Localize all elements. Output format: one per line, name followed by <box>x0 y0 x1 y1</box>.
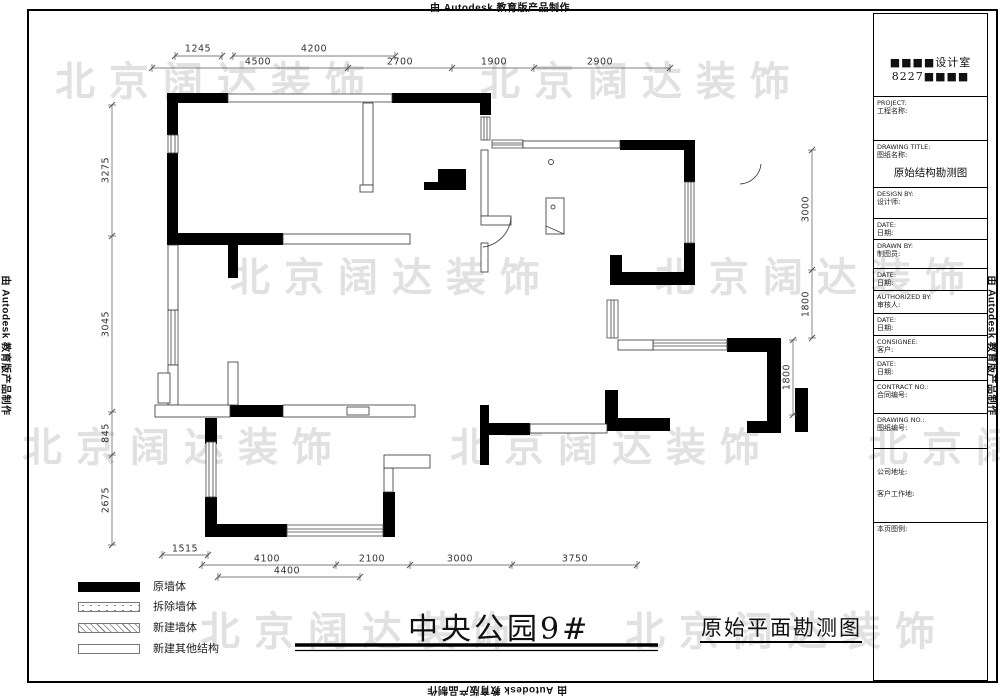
page-legend-label: 本页图例: <box>877 525 984 534</box>
legend-item-new-wall: 新建墙体 <box>78 622 197 633</box>
legend-label: 原墙体 <box>153 581 186 592</box>
floor-plan <box>0 0 1000 700</box>
dim-label: 2900 <box>587 57 613 67</box>
dim-label: 1800 <box>782 364 792 390</box>
autodesk-stamp-right: 由 Autodesk 教育版产品制作 <box>986 246 1000 446</box>
thin-walls <box>155 103 653 492</box>
dim-label: 4100 <box>254 554 280 564</box>
studio-number-redacted: 8227■■■■ <box>877 70 984 84</box>
tb-label-en: DATE: <box>877 360 984 368</box>
cad-sheet: 北京阔达装饰 北京阔达装饰 北京阔达装饰 北京阔达装饰 北京阔达装饰 北京阔达装… <box>0 0 1000 700</box>
tb-label-en: DATE: <box>877 221 984 229</box>
studio-cell: ■■■■设计室 8227■■■■ <box>874 14 987 97</box>
dim-label: 1900 <box>481 57 507 67</box>
legend-label: 新建墙体 <box>153 622 197 633</box>
legend-swatch-demolished-wall <box>78 602 140 612</box>
tb-label-zh: 客户: <box>877 346 984 355</box>
tb-page-legend-cell: 本页图例: <box>874 523 987 683</box>
legend-label: 拆除墙体 <box>153 601 197 612</box>
legend-item-new-structure: 新建其他结构 <box>78 643 219 654</box>
legend-swatch-new-wall <box>78 623 140 633</box>
tb-row-drawing-title: DRAWING TITLE: 图纸名称: 原始结构勘测图 <box>874 141 987 188</box>
company-address-label: 公司地址: <box>877 467 984 477</box>
dim-label: 3750 <box>562 554 588 564</box>
tb-row-date: DATE: 日期: <box>874 269 987 291</box>
dim-label: 3000 <box>801 196 811 222</box>
tb-label-zh: 日期: <box>877 279 984 288</box>
dim-label: 2675 <box>101 487 111 513</box>
drawing-title: 原始平面勘测图 <box>701 612 862 642</box>
tb-row-contract-no: CONTRACT NO.: 合同编号: <box>874 381 987 414</box>
tb-label-zh: 审核人: <box>877 301 984 310</box>
project-title: 中央公园9# <box>408 604 590 648</box>
dim-label: 2700 <box>387 57 413 67</box>
dim-label: 3275 <box>101 157 111 183</box>
studio-name-redacted: ■■■■设计室 <box>877 56 984 70</box>
tb-label-en: DRAWN BY: <box>877 242 984 250</box>
dim-label: 4500 <box>245 57 271 67</box>
tb-row-date: DATE: 日期: <box>874 219 987 240</box>
tb-row-project: PROJECT: 工程名称: <box>874 97 987 141</box>
tb-row-drawing-no: DRAWING NO.: 图纸编号: <box>874 414 987 449</box>
tb-drawing-title-value: 原始结构勘测图 <box>877 165 984 180</box>
door-arc <box>740 164 761 184</box>
dim-label: 1800 <box>801 291 811 317</box>
dim-label: 3045 <box>101 311 111 337</box>
client-address-label: 客户工作地: <box>877 489 984 499</box>
dim-label: 1515 <box>172 544 198 554</box>
autodesk-stamp-top: 由 Autodesk 教育版产品制作 <box>0 0 1000 14</box>
dim-label: 4400 <box>274 566 300 576</box>
tb-label-en: DRAWING NO.: <box>877 416 984 424</box>
tb-label-en: DESIGN BY: <box>877 190 984 198</box>
tb-label-zh: 设计师: <box>877 198 984 207</box>
tb-label-zh: 制图员: <box>877 250 984 259</box>
autodesk-stamp-left: 由 Autodesk 教育版产品制作 <box>0 246 15 446</box>
legend-swatch-new-structure <box>78 644 140 654</box>
tb-label-zh: 日期: <box>877 368 984 377</box>
tb-row-date: DATE: 日期: <box>874 314 987 336</box>
legend-item-demolished-wall: 拆除墙体 <box>78 601 197 612</box>
tb-row-date: DATE: 日期: <box>874 358 987 381</box>
tb-row-design-by: DESIGN BY: 设计师: <box>874 188 987 219</box>
dim-label: 1245 <box>185 44 211 54</box>
tb-row-consignee: CONSIGNEE: 客户: <box>874 336 987 358</box>
tb-label-zh: 图纸编号: <box>877 424 984 433</box>
tb-label-en: AUTHORIZED BY: <box>877 293 984 301</box>
dim-label: 4200 <box>301 44 327 54</box>
windows <box>168 94 727 536</box>
tb-row-authorized-by: AUTHORIZED BY: 审核人: <box>874 291 987 314</box>
tb-label-en: CONTRACT NO.: <box>877 383 984 391</box>
tb-address-cell: 公司地址: 客户工作地: <box>874 449 987 523</box>
dim-label: 3000 <box>447 554 473 564</box>
tb-label-zh: 合同编号: <box>877 391 984 400</box>
tb-label-en: DATE: <box>877 316 984 324</box>
legend-label: 新建其他结构 <box>153 643 219 654</box>
tb-row-drawn-by: DRAWN BY: 制图员: <box>874 240 987 269</box>
legend-swatch-original-wall <box>78 582 140 592</box>
tb-label-en: DRAWING TITLE: <box>877 143 984 151</box>
tb-label-zh: 工程名称: <box>877 107 984 116</box>
tb-label-en: PROJECT: <box>877 99 984 107</box>
tb-label-en: CONSIGNEE: <box>877 338 984 346</box>
tb-label-zh: 日期: <box>877 324 984 333</box>
legend-item-original-wall: 原墙体 <box>78 581 186 592</box>
dim-label: 2100 <box>359 554 385 564</box>
autodesk-stamp-bottom: 由 Autodesk 教育版产品制作 <box>397 684 597 699</box>
dim-label: 845 <box>101 423 111 443</box>
fixtures <box>483 160 761 248</box>
tb-label-zh: 图纸名称: <box>877 151 984 160</box>
tb-label-en: DATE: <box>877 271 984 279</box>
title-block: ■■■■设计室 8227■■■■ PROJECT: 工程名称: DRAWING … <box>873 13 988 682</box>
tb-label-zh: 日期: <box>877 229 984 238</box>
